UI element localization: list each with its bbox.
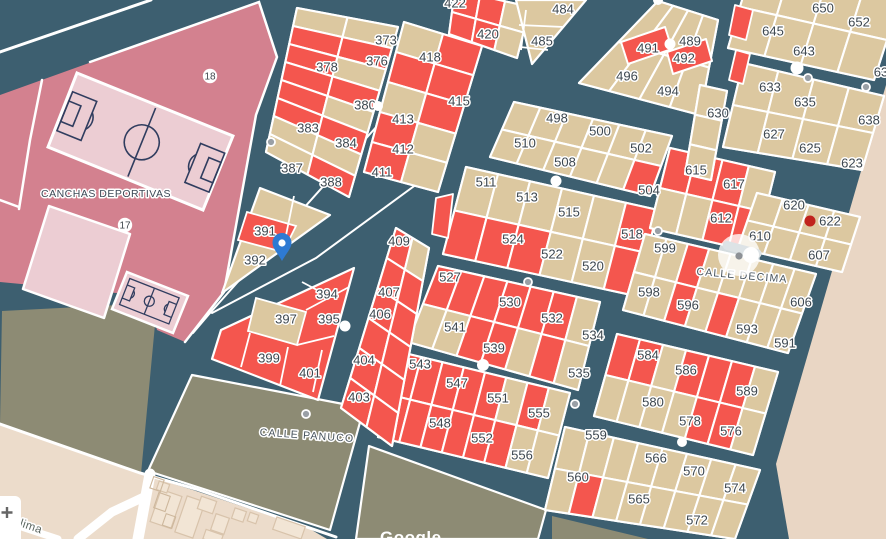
svg-text:599: 599	[654, 241, 676, 256]
svg-text:407: 407	[378, 285, 400, 300]
svg-text:404: 404	[353, 353, 375, 368]
svg-text:498: 498	[546, 111, 568, 126]
svg-text:551: 551	[487, 391, 509, 406]
svg-text:556: 556	[511, 448, 533, 463]
svg-text:630: 630	[707, 106, 729, 121]
svg-text:574: 574	[724, 481, 746, 496]
svg-text:399: 399	[258, 351, 280, 366]
svg-text:622: 622	[819, 214, 841, 229]
svg-text:578: 578	[679, 414, 701, 429]
svg-text:513: 513	[516, 190, 538, 205]
svg-text:515: 515	[558, 205, 580, 220]
svg-text:593: 593	[736, 322, 758, 337]
svg-text:63: 63	[874, 65, 886, 80]
svg-text:409: 409	[388, 234, 410, 249]
svg-text:18: 18	[204, 72, 216, 83]
svg-text:403: 403	[348, 390, 370, 405]
svg-text:548: 548	[429, 416, 451, 431]
svg-text:530: 530	[499, 295, 521, 310]
svg-text:373: 373	[375, 33, 397, 48]
svg-text:395: 395	[318, 312, 340, 327]
svg-text:627: 627	[763, 127, 785, 142]
svg-text:380: 380	[354, 98, 376, 113]
svg-text:532: 532	[541, 311, 563, 326]
svg-text:598: 598	[638, 285, 660, 300]
svg-text:492: 492	[673, 51, 695, 66]
svg-text:510: 510	[514, 136, 536, 151]
svg-text:489: 489	[679, 34, 701, 49]
svg-text:534: 534	[582, 328, 604, 343]
svg-text:17: 17	[119, 221, 131, 232]
svg-text:520: 520	[582, 259, 604, 274]
svg-text:570: 570	[683, 464, 705, 479]
svg-text:388: 388	[320, 175, 342, 190]
svg-text:650: 650	[812, 1, 834, 16]
svg-text:CANCHAS DEPORTIVAS: CANCHAS DEPORTIVAS	[41, 188, 171, 200]
svg-text:633: 633	[759, 80, 781, 95]
svg-text:387: 387	[281, 161, 303, 176]
svg-text:383: 383	[297, 121, 319, 136]
svg-text:586: 586	[675, 363, 697, 378]
svg-text:539: 539	[483, 341, 505, 356]
svg-text:Google: Google	[380, 528, 442, 539]
svg-text:504: 504	[638, 183, 660, 198]
svg-text:615: 615	[685, 163, 707, 178]
svg-text:580: 580	[642, 395, 664, 410]
svg-text:541: 541	[444, 320, 466, 335]
svg-text:391: 391	[254, 224, 276, 239]
svg-text:527: 527	[439, 270, 461, 285]
svg-text:376: 376	[366, 54, 388, 69]
svg-text:572: 572	[686, 513, 708, 528]
svg-text:625: 625	[799, 141, 821, 156]
svg-text:547: 547	[446, 376, 468, 391]
svg-text:596: 596	[677, 298, 699, 313]
svg-text:415: 415	[448, 94, 470, 109]
svg-text:397: 397	[275, 312, 297, 327]
svg-text:422: 422	[444, 0, 466, 11]
svg-text:543: 543	[409, 357, 431, 372]
svg-text:535: 535	[568, 366, 590, 381]
svg-text:566: 566	[645, 451, 667, 466]
svg-text:378: 378	[316, 60, 338, 75]
svg-text:607: 607	[808, 248, 830, 263]
svg-text:591: 591	[774, 336, 796, 351]
svg-text:394: 394	[316, 287, 338, 302]
svg-text:413: 413	[392, 112, 414, 127]
svg-text:406: 406	[369, 307, 391, 322]
svg-text:491: 491	[637, 41, 659, 56]
svg-text:584: 584	[637, 348, 659, 363]
svg-text:418: 418	[419, 50, 441, 65]
svg-text:623: 623	[841, 156, 863, 171]
svg-text:518: 518	[621, 227, 643, 242]
svg-text:589: 589	[736, 384, 758, 399]
svg-text:384: 384	[335, 136, 357, 151]
svg-text:485: 485	[531, 34, 553, 49]
svg-text:392: 392	[244, 253, 266, 268]
svg-text:617: 617	[723, 177, 745, 192]
svg-text:411: 411	[372, 165, 393, 180]
svg-text:638: 638	[858, 113, 880, 128]
svg-text:576: 576	[720, 424, 742, 439]
svg-text:555: 555	[528, 406, 550, 421]
svg-text:502: 502	[630, 141, 652, 156]
svg-text:565: 565	[628, 492, 650, 507]
svg-text:496: 496	[616, 69, 638, 84]
svg-text:560: 560	[567, 470, 589, 485]
svg-text:606: 606	[790, 295, 812, 310]
svg-text:484: 484	[552, 2, 574, 17]
svg-text:420: 420	[477, 27, 499, 42]
svg-text:643: 643	[793, 44, 815, 59]
svg-text:645: 645	[762, 24, 784, 39]
svg-text:401: 401	[299, 366, 321, 381]
svg-text:511: 511	[476, 175, 497, 190]
svg-text:559: 559	[585, 428, 607, 443]
svg-text:612: 612	[710, 211, 732, 226]
svg-text:635: 635	[794, 95, 816, 110]
svg-text:524: 524	[502, 232, 524, 247]
svg-text:494: 494	[657, 84, 679, 99]
svg-text:522: 522	[541, 247, 563, 262]
svg-text:500: 500	[589, 124, 611, 139]
svg-text:652: 652	[848, 15, 870, 30]
svg-text:620: 620	[783, 198, 805, 213]
svg-text:508: 508	[554, 155, 576, 170]
svg-text:412: 412	[392, 142, 414, 157]
svg-text:552: 552	[471, 431, 493, 446]
